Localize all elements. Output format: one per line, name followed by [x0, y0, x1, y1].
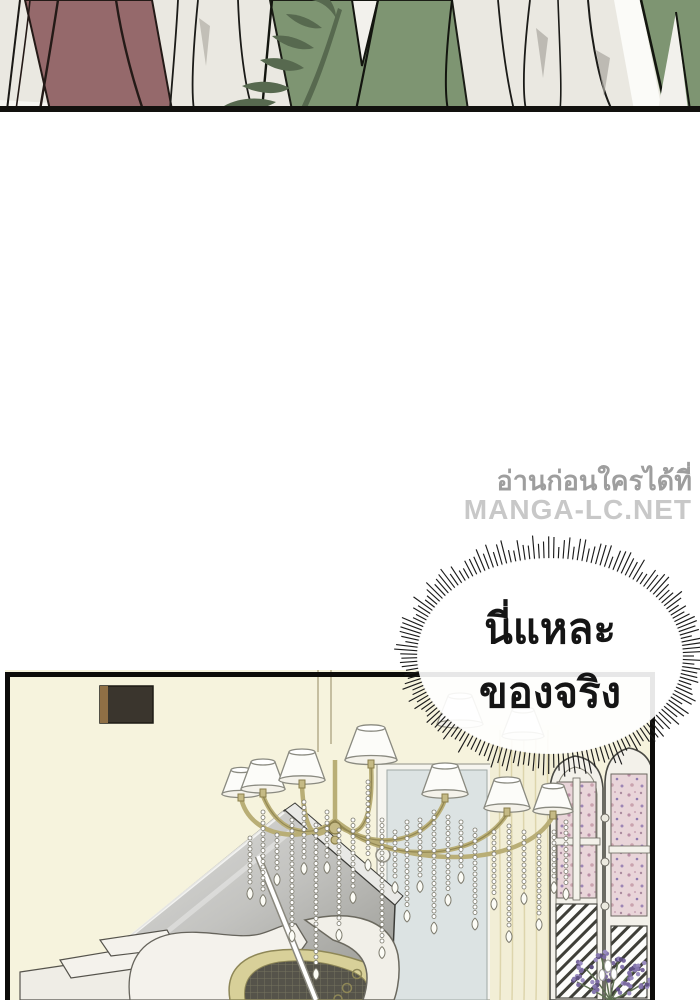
wall-frame: [100, 686, 153, 723]
manga-page: อ่านก่อนใครได้ที่ MANGA-LC.NET นี่แหละ ข…: [0, 0, 700, 1000]
bottom-panel: [5, 670, 655, 1000]
panel-border-line: [0, 106, 700, 112]
watermark: อ่านก่อนใครได้ที่ MANGA-LC.NET: [0, 467, 692, 525]
bubble-line1: นี่แหละ: [420, 597, 680, 661]
folding-screen: [550, 748, 653, 1000]
watermark-line2: MANGA-LC.NET: [0, 495, 692, 524]
top-panel: [0, 0, 700, 118]
watermark-line1: อ่านก่อนใครได้ที่: [0, 467, 692, 495]
